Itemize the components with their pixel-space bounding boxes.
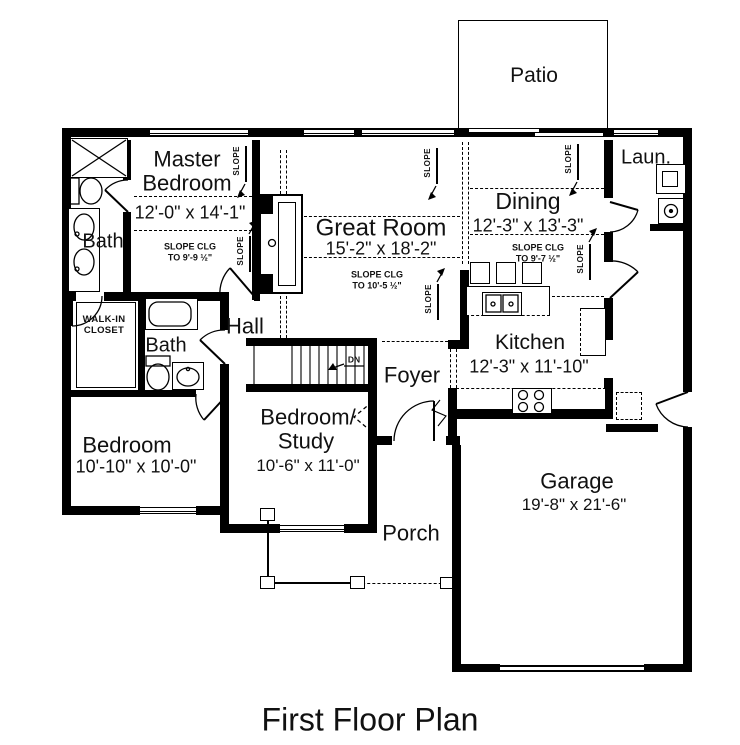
great-room-dims: 15'-2" x 18'-2" [326, 240, 437, 259]
door-laundry [610, 202, 638, 232]
master-bedroom-slope-1: SLOPE CLG [164, 242, 216, 251]
garage-label: Garage [540, 469, 613, 492]
dining-label: Dining [495, 189, 560, 213]
bath2-label: Bath [145, 336, 186, 357]
door-bedroom [196, 394, 228, 420]
master-bath-label: Bath [82, 232, 123, 253]
slope-arrow-3 [428, 186, 436, 200]
slope-underline-3 [436, 148, 438, 184]
stairs [254, 346, 364, 384]
kitchen-label: Kitchen [495, 332, 565, 354]
kitchen-sink-icon [486, 295, 518, 312]
bedroom-study-label-1: Bedroom/ [260, 405, 355, 428]
great-room-slope-1: SLOPE CLG [351, 270, 403, 279]
slope-label-2: SLOPE [236, 236, 245, 266]
master-bedroom-dims: 12'-0" x 14'-1" [135, 204, 246, 223]
kitchen-dims: 12'-3" x 11'-10" [469, 358, 588, 377]
foyer-label: Foyer [384, 363, 440, 386]
slope-arrow-1 [237, 184, 245, 198]
wic-label-2: CLOSET [84, 326, 124, 336]
fireplace-dot-icon [269, 240, 276, 247]
door-bedroom-study [354, 402, 372, 432]
bedroom-dims: 10'-10" x 10'-0" [76, 458, 197, 477]
slope-label-6: SLOPE [576, 244, 585, 274]
bedroom-study-label-2: Study [278, 429, 334, 452]
door-bath2 [200, 330, 225, 364]
great-room-label: Great Room [316, 215, 447, 240]
door-front [394, 400, 446, 441]
patio-label: Patio [510, 65, 558, 87]
master-bedroom-slope-2: TO 9'-9 ½" [168, 253, 212, 262]
stove-burners-icon [519, 391, 544, 412]
door-master-bath [105, 180, 128, 212]
hall-label: Hall [226, 314, 264, 337]
slope-underline-5 [577, 144, 579, 180]
tub-inner-icon [149, 302, 191, 326]
slope-arrow-2 [249, 220, 257, 234]
laundry-tub-icon [665, 205, 678, 218]
plan-linework [0, 0, 740, 745]
slope-underline-1 [245, 146, 247, 182]
bedroom-study-dims: 10'-6" x 11'-0" [256, 457, 359, 475]
page-title: First Floor Plan [262, 702, 479, 739]
shower-x-icon [72, 140, 126, 176]
laundry-label: Laun. [621, 148, 671, 169]
first-floor-plan: SLOPE SLOPE SLOPE SLOPE SLOPE SLOPE Pati… [0, 0, 740, 745]
slope-arrow-5 [569, 182, 577, 196]
master-toilet-icon [68, 178, 102, 204]
porch-label: Porch [382, 521, 439, 544]
slope-underline-4 [437, 284, 439, 320]
slope-label-3: SLOPE [423, 148, 432, 178]
master-bedroom-label-1: Master [153, 147, 220, 170]
slope-arrow-6 [589, 228, 597, 242]
bath2-toilet-icon [146, 356, 170, 390]
great-room-slope-2: TO 10'-5 ½" [352, 281, 401, 290]
dining-slope-2: TO 9'-7 ½" [516, 254, 560, 263]
slope-arrow-4 [437, 268, 445, 282]
door-garage-service [656, 392, 688, 427]
down-label: DN [348, 356, 360, 365]
dining-slope-1: SLOPE CLG [512, 243, 564, 252]
slope-label-1: SLOPE [232, 146, 241, 176]
door-master-bedroom [220, 268, 254, 296]
bedroom-label: Bedroom [82, 433, 171, 456]
master-bedroom-label-2: Bedroom [142, 171, 231, 194]
dining-dims: 12'-3" x 13'-3" [473, 217, 584, 236]
door-mud-hall [610, 261, 638, 298]
slope-underline-2 [249, 236, 251, 272]
slope-label-5: SLOPE [564, 144, 573, 174]
wic-label-1: WALK-IN [83, 315, 126, 325]
slope-underline-6 [589, 244, 591, 280]
garage-dims: 19'-8" x 21'-6" [522, 496, 627, 514]
bath2-sink-icon [177, 367, 199, 386]
slope-label-4: SLOPE [424, 284, 433, 314]
